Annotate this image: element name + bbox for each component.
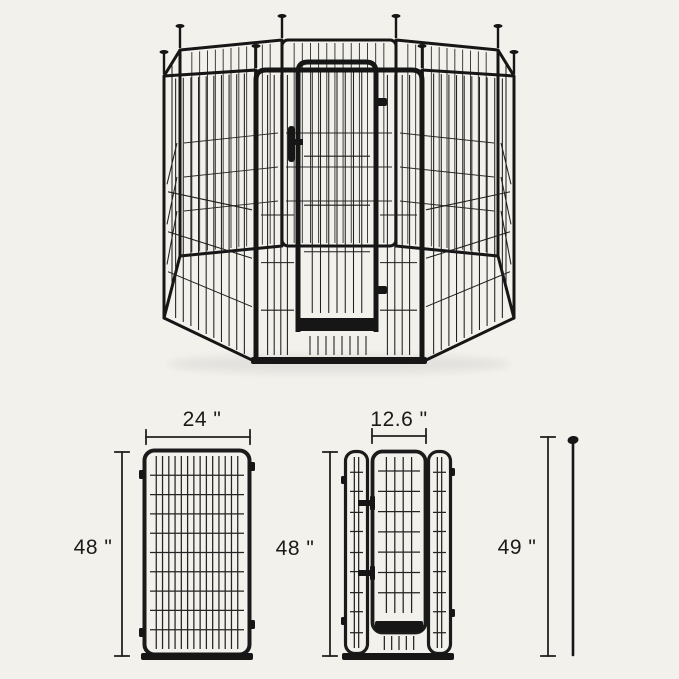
door-threshold bbox=[298, 318, 376, 331]
door-panel-height-label: 48 " bbox=[276, 537, 315, 561]
panel-height-label: 48 " bbox=[74, 536, 113, 560]
door-panel-diagram bbox=[323, 429, 455, 660]
door-panel-height-dimension bbox=[323, 452, 337, 656]
panel-width-dimension bbox=[146, 430, 250, 444]
door-diagram-right-mesh bbox=[433, 457, 446, 648]
door-panel-bottom-rail bbox=[251, 357, 427, 364]
product-image: 24 " 48 " 12.6 " 48 " 49 " bbox=[0, 0, 679, 679]
stake-diagram bbox=[541, 435, 579, 656]
panel-diagram-bottom-rail bbox=[141, 653, 253, 660]
door-diagram-bottom-rail bbox=[342, 653, 454, 660]
door-diagram-left-mesh bbox=[350, 457, 363, 648]
stake-height-dimension bbox=[541, 437, 555, 656]
playpen-photo bbox=[160, 14, 519, 374]
below-door-mesh bbox=[310, 336, 366, 355]
panel-height-dimension bbox=[115, 452, 129, 656]
panel-width-label: 24 " bbox=[183, 408, 222, 432]
panel-front-right-frame bbox=[422, 70, 514, 362]
door-diagram-threshold bbox=[375, 621, 423, 632]
door-diagram-door-mesh bbox=[378, 457, 420, 613]
door-latch-handle bbox=[288, 126, 295, 162]
stake-height-label: 49 " bbox=[498, 536, 537, 560]
door-mesh bbox=[304, 68, 370, 313]
panel-front-left-frame bbox=[164, 70, 256, 362]
panel-diagram-mesh bbox=[150, 456, 244, 649]
door-diagram-door-frame bbox=[373, 452, 426, 633]
stake-head bbox=[567, 435, 579, 444]
door-panel-left-strip-mesh bbox=[261, 75, 294, 355]
door-panel-right-strip-mesh bbox=[380, 75, 417, 355]
playpen-illustration bbox=[0, 0, 679, 679]
door-hinge-top bbox=[376, 98, 387, 106]
door-hinge-bottom bbox=[376, 286, 387, 294]
corner-stake-pins bbox=[160, 14, 519, 74]
door-width-label: 12.6 " bbox=[370, 408, 427, 432]
panel-diagram bbox=[115, 430, 255, 660]
door-diagram-under-mesh bbox=[384, 636, 413, 650]
door-latch-bar bbox=[294, 139, 303, 145]
